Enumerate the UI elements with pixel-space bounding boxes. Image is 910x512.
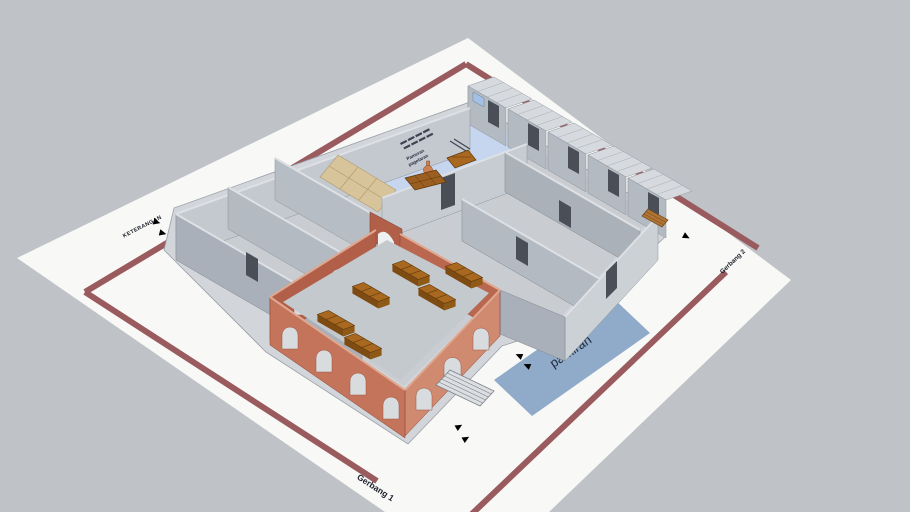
model-viewer: parkiran KETERANGAN Gerbang 1 Gerbang 2: [0, 0, 910, 512]
3d-model-viewport[interactable]: parkiran KETERANGAN Gerbang 1 Gerbang 2: [0, 0, 910, 512]
